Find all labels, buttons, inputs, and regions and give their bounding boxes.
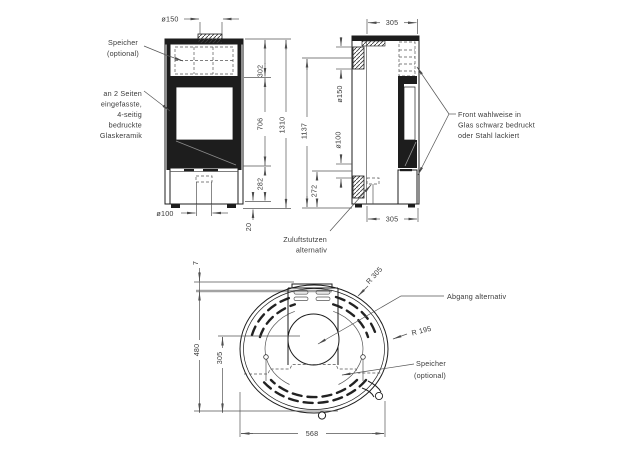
side-view-drawing: 305 ø150 1137 ø100 272 xyxy=(283,18,535,254)
top-handle xyxy=(318,412,325,419)
dim-label-o150-top: ø150 xyxy=(161,15,178,24)
top-speicher-dashed-line xyxy=(244,365,383,375)
dim-label-1137: 1137 xyxy=(300,123,309,139)
front-floor-inlet-dashed xyxy=(196,176,212,182)
side-top-band xyxy=(352,36,419,41)
dim-label-480: 480 xyxy=(192,344,201,357)
dim-label-706: 706 xyxy=(256,118,265,131)
note-front-line3: oder Stahl lackiert xyxy=(458,131,519,140)
top-radius-labels: R 305 R 195 xyxy=(358,265,432,339)
technical-drawing-page: ø150 302 706 282 xyxy=(0,0,624,460)
dim-label-1310: 1310 xyxy=(278,117,287,134)
side-pedestal xyxy=(398,170,417,204)
note-top-speicher-line2: (optional) xyxy=(414,371,446,380)
dim-label-302: 302 xyxy=(256,65,265,78)
dim-label-568: 568 xyxy=(306,429,319,438)
note-abgang: Abgang alternativ xyxy=(447,292,507,301)
note-glass-line1: an 2 Seiten xyxy=(103,89,142,98)
front-note-glass: an 2 Seiten eingefasste, 4-seitig bedruc… xyxy=(100,89,170,140)
note-glass-line4: bedruckte xyxy=(109,121,142,130)
top-right-screw xyxy=(361,355,366,360)
side-dim-bottom-depth: 305 xyxy=(367,206,418,224)
dim-label-20: 20 xyxy=(244,223,253,231)
dim-label-305-top: 305 xyxy=(386,18,399,27)
speicher-leader-line xyxy=(144,46,183,61)
front-dim-chain: 302 706 282 20 1310 xyxy=(243,39,291,231)
side-glass-edge-column xyxy=(398,84,404,168)
side-note-front-material: Front wahlweise in Glas schwarz bedruckt… xyxy=(417,67,535,175)
note-top-speicher-line1: Speicher xyxy=(416,359,446,368)
front-pedestal xyxy=(170,168,238,204)
dim-label-o150-side: ø150 xyxy=(335,85,344,102)
front-view-drawing: ø150 302 706 282 xyxy=(100,15,291,232)
side-dim-top-depth: 305 xyxy=(367,18,418,34)
top-dim-width: 568 xyxy=(240,392,385,438)
front-flue-stub xyxy=(198,34,222,44)
top-flue-opening-circle xyxy=(288,314,339,365)
front-speicher-dashed-area xyxy=(175,47,233,74)
side-window-strip xyxy=(404,87,415,140)
side-floor-inlet-dashed xyxy=(367,178,379,184)
glass-leader-line xyxy=(144,91,170,111)
dim-label-r305: R 305 xyxy=(364,265,384,286)
dim-label-282: 282 xyxy=(256,178,265,191)
note-zuluft-line2: alternativ xyxy=(296,246,327,255)
dim-label-r195: R 195 xyxy=(411,324,433,338)
top-left-screw xyxy=(264,355,269,360)
side-front-section xyxy=(398,42,417,204)
side-front-foot xyxy=(408,204,415,208)
dim-label-o100-side: ø100 xyxy=(334,131,343,148)
dim-label-272: 272 xyxy=(310,185,319,198)
note-glass-line5: Glaskeramik xyxy=(100,131,142,140)
top-view-drawing: 7 480 305 568 R 305 R 195 xyxy=(191,261,507,438)
note-front-line1: Front wahlweise in xyxy=(458,110,521,119)
note-speicher-line1: Speicher xyxy=(108,38,138,47)
dim-label-305-bottom: 305 xyxy=(386,215,399,224)
side-rear-foot xyxy=(355,204,362,208)
front-dim-flue-diameter: ø150 xyxy=(161,15,239,35)
side-rear-flue-stub xyxy=(353,47,364,69)
side-top-outlet-hatch xyxy=(362,41,385,46)
front-right-wall xyxy=(238,44,242,170)
stove-dimension-drawing: ø150 302 706 282 xyxy=(0,0,624,460)
note-glass-line2: eingefasste, xyxy=(101,100,142,109)
front-dim-inlet-diameter: ø100 xyxy=(156,203,228,218)
note-speicher-line2: (optional) xyxy=(107,49,139,58)
note-front-line2: Glas schwarz bedruckt xyxy=(458,121,535,130)
dim-label-305-topview: 305 xyxy=(215,352,224,365)
side-divider-band xyxy=(398,76,417,84)
note-zuluft-line1: Zuluftstutzen xyxy=(283,235,327,244)
front-right-foot xyxy=(227,204,236,208)
note-glass-line3: 4-seitig xyxy=(117,110,142,119)
dim-label-7: 7 xyxy=(191,261,200,265)
front-left-wall xyxy=(167,44,171,170)
top-note-speicher: Speicher (optional) xyxy=(342,359,446,380)
front-left-foot xyxy=(171,204,180,208)
dim-label-o100-bottom: ø100 xyxy=(156,209,173,218)
side-dim-left-group: ø150 1137 ø100 272 xyxy=(300,37,353,208)
front-glass-window xyxy=(176,87,233,140)
